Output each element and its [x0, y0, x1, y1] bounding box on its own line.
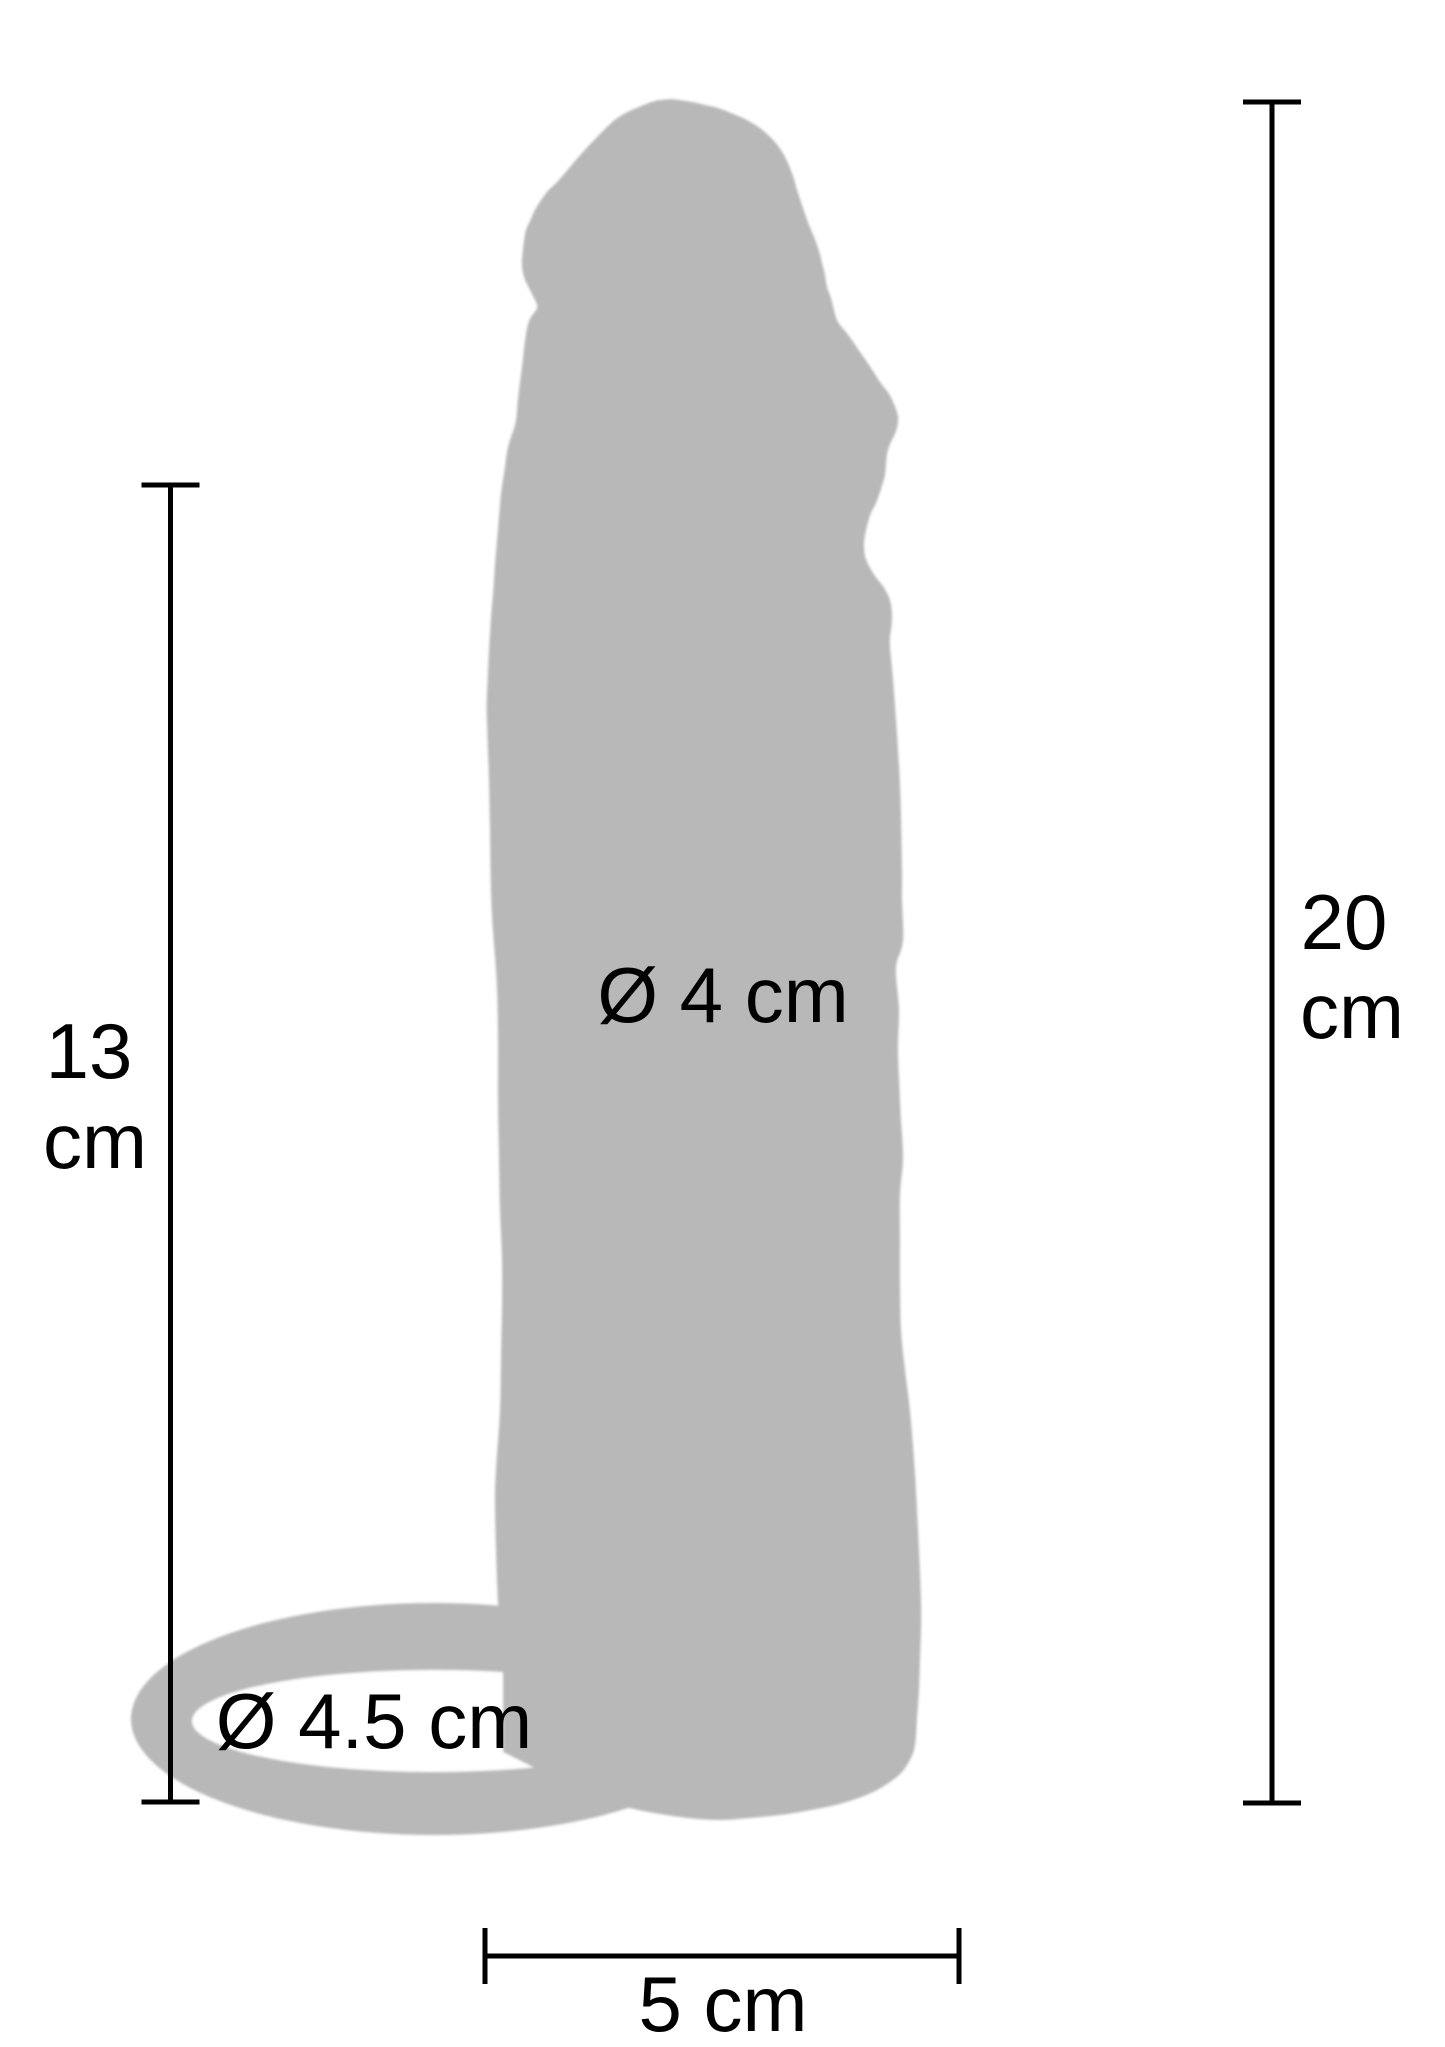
- svg-text:Ø 4.5 cm: Ø 4.5 cm: [216, 1677, 532, 1765]
- svg-text:20: 20: [1301, 878, 1388, 966]
- svg-text:cm: cm: [1300, 967, 1404, 1055]
- svg-text:13: 13: [46, 1007, 133, 1095]
- svg-text:Ø 4 cm: Ø 4 cm: [597, 951, 848, 1039]
- svg-text:5 cm: 5 cm: [638, 1960, 807, 2047]
- svg-text:cm: cm: [43, 1097, 147, 1185]
